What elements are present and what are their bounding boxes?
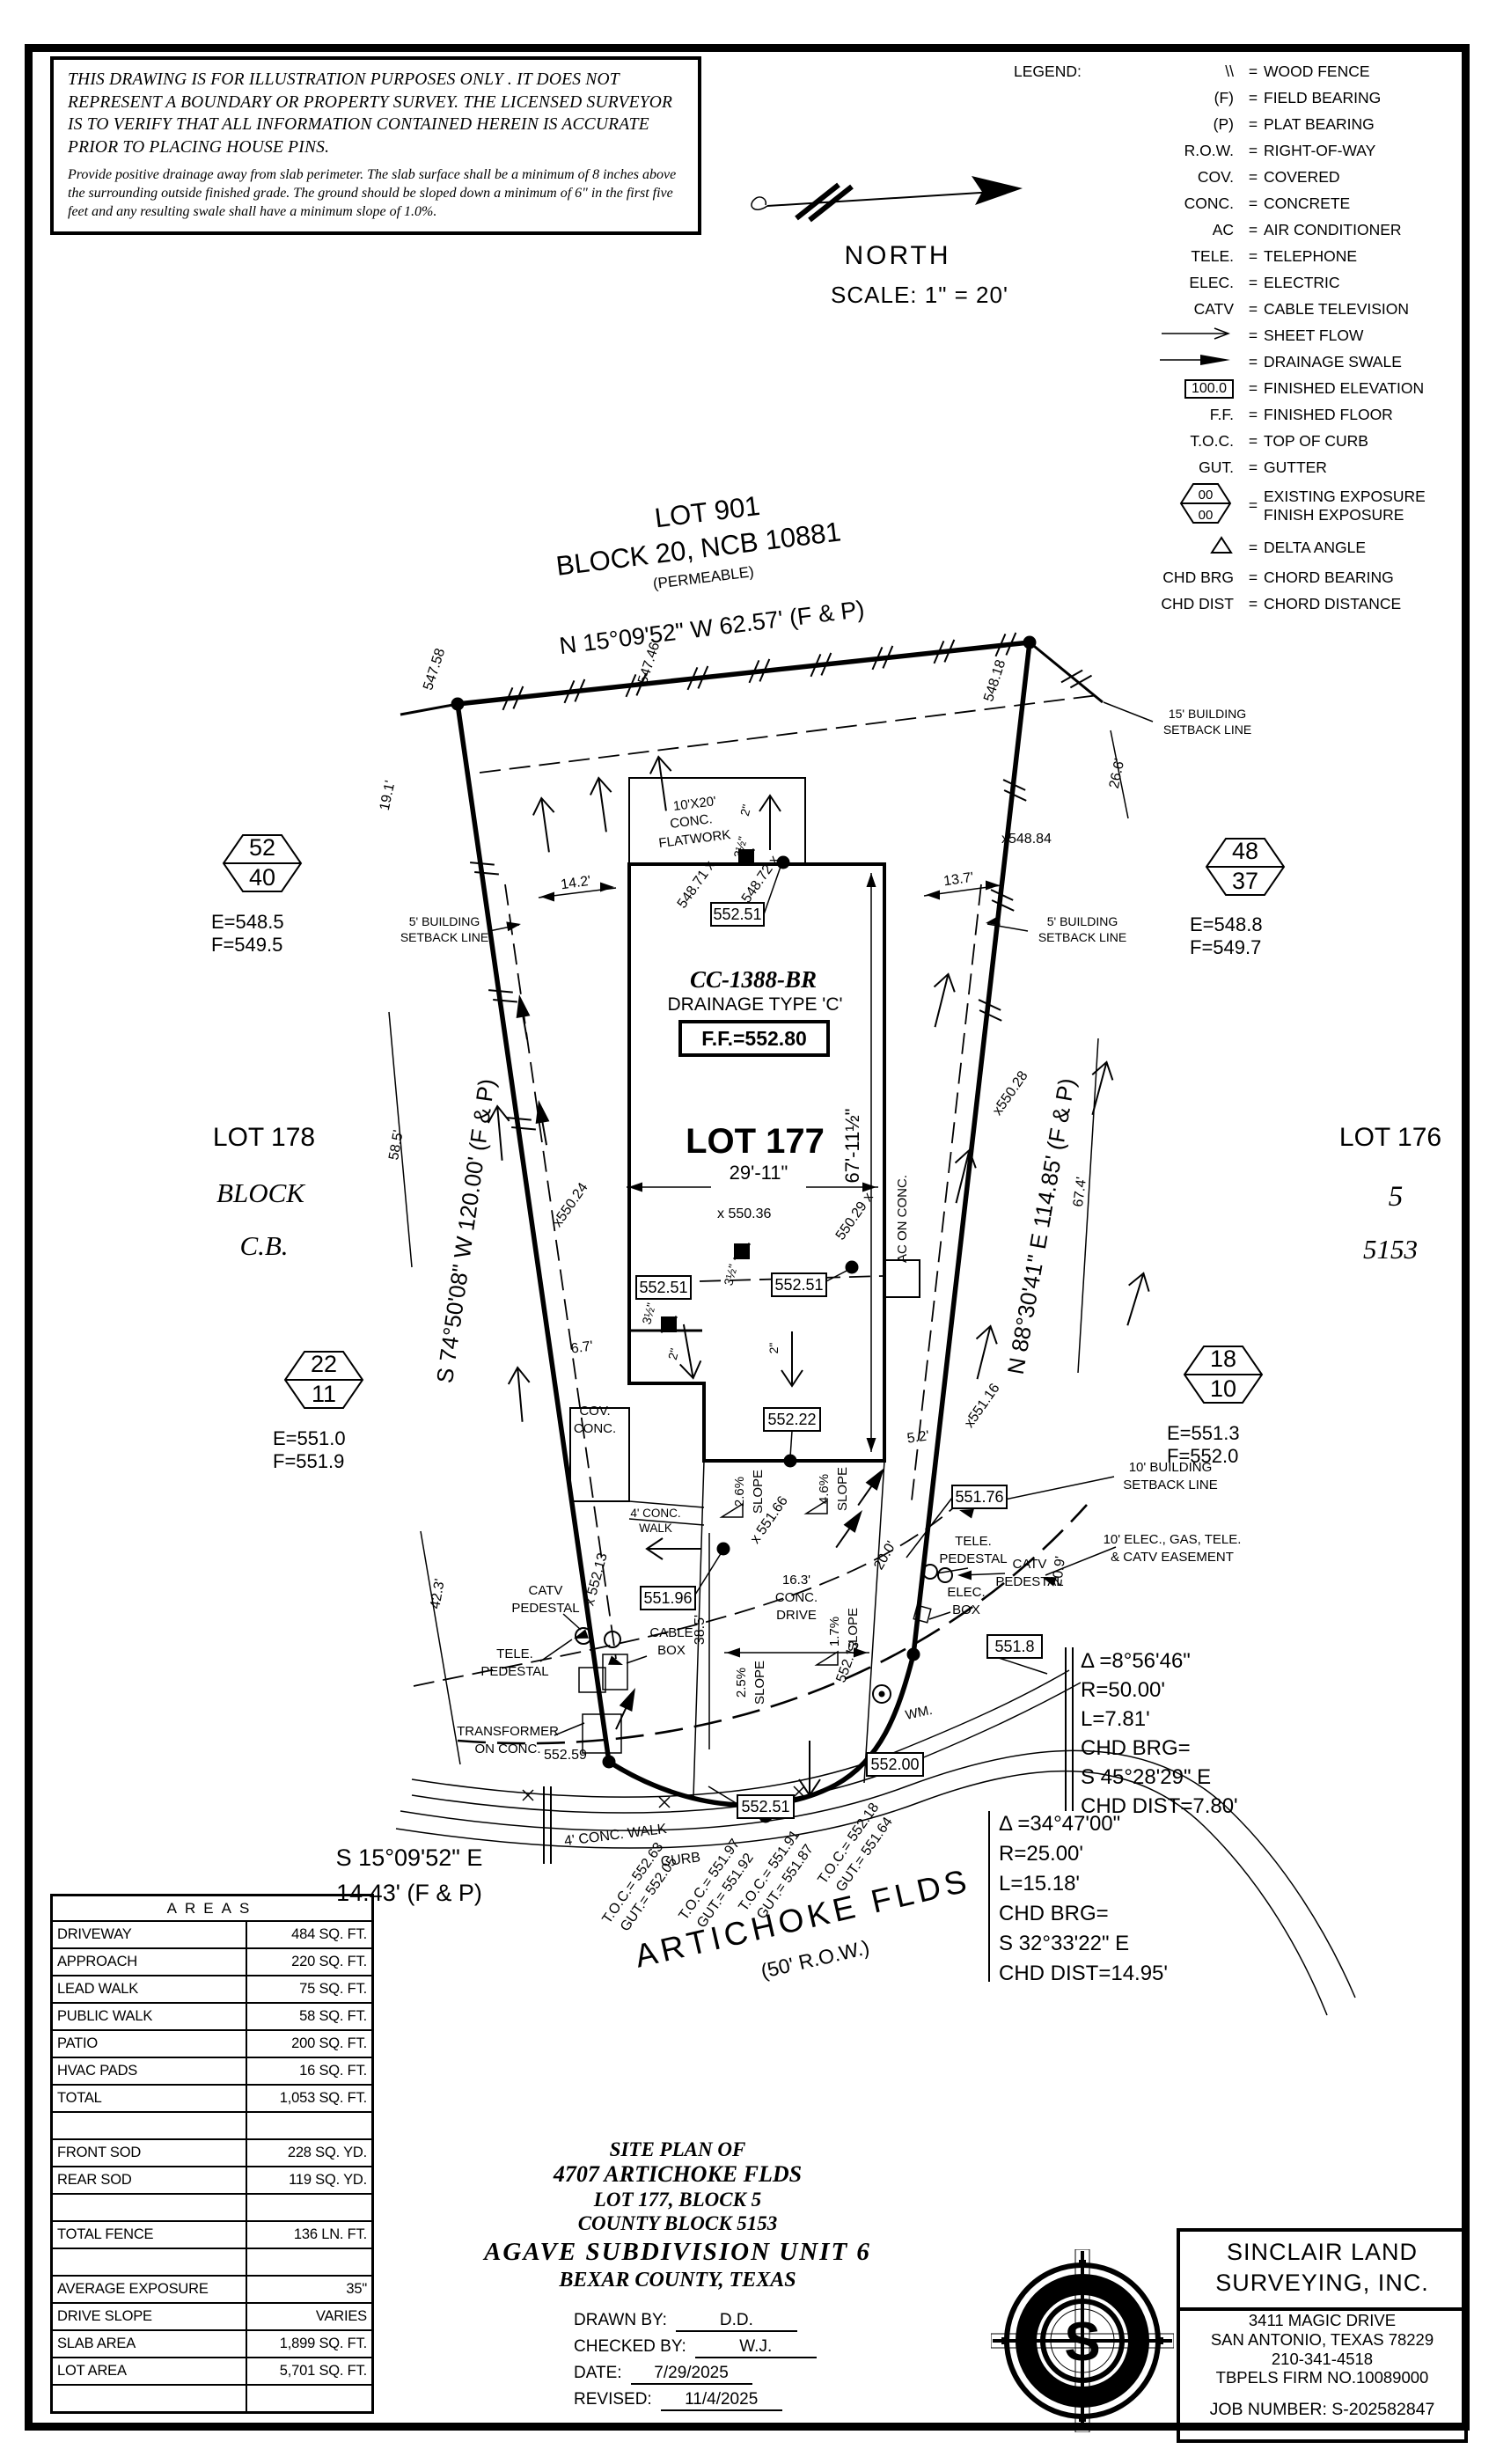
- drawn-by-row: DRAWN BY:D.D.: [574, 2311, 817, 2337]
- svg-text:552.00: 552.00: [870, 1756, 919, 1773]
- svg-text:PEDESTAL: PEDESTAL: [511, 1601, 579, 1616]
- svg-text:LOT 177: LOT 177: [686, 1122, 825, 1161]
- svg-text:5: 5: [1389, 1181, 1404, 1213]
- svg-text:52: 52: [249, 834, 275, 861]
- svg-text:F=549.7: F=549.7: [1190, 936, 1261, 958]
- date-row: DATE:7/29/2025: [574, 2364, 817, 2390]
- svg-text:551.76: 551.76: [955, 1488, 1003, 1506]
- checked-by-row: CHECKED BY:W.J.: [574, 2337, 817, 2364]
- svg-text:Δ =8°56'46": Δ =8°56'46": [1081, 1649, 1191, 1673]
- table-row: AVERAGE EXPOSURE35": [53, 2277, 371, 2304]
- svg-text:2": 2": [766, 1343, 781, 1354]
- svg-text:5.2': 5.2': [906, 1428, 930, 1446]
- svg-text:552.51: 552.51: [774, 1276, 823, 1294]
- revised-value: 11/4/2025: [661, 2390, 782, 2411]
- svg-text:5153: 5153: [1363, 1234, 1418, 1265]
- table-row: HVAC PADS16 SQ. FT.: [53, 2058, 371, 2086]
- firm-name-line: SURVEYING, INC.: [1180, 2268, 1464, 2299]
- svg-text:LOT 176: LOT 176: [1339, 1123, 1441, 1152]
- title-line: AGAVE SUBDIVISION UNIT 6: [370, 2236, 986, 2268]
- svg-text:WALK: WALK: [639, 1522, 672, 1535]
- table-row: TOTAL FENCE136 LN. FT.: [53, 2222, 371, 2249]
- svg-text:11: 11: [312, 1381, 336, 1407]
- svg-text:4' CONC.: 4' CONC.: [630, 1507, 680, 1520]
- svg-text:BLOCK: BLOCK: [216, 1177, 306, 1208]
- svg-text:2": 2": [737, 803, 754, 817]
- site-plan-sheet: { "colors": {"ink": "#000000", "paper": …: [0, 0, 1496, 2464]
- svg-text:CABLE: CABLE: [649, 1625, 693, 1640]
- svg-text:TELE.: TELE.: [496, 1646, 533, 1661]
- svg-text:SLOPE: SLOPE: [846, 1608, 861, 1652]
- signature-block: DRAWN BY:D.D. CHECKED BY:W.J. DATE:7/29/…: [574, 2311, 817, 2416]
- svg-text:10: 10: [1210, 1375, 1236, 1402]
- svg-text:SLOPE: SLOPE: [835, 1467, 850, 1511]
- areas-table-title: AREAS: [53, 1896, 371, 1922]
- svg-text:550.29 x: 550.29 x: [833, 1190, 876, 1243]
- svg-text:E=551.3: E=551.3: [1167, 1422, 1240, 1444]
- svg-text:R=50.00': R=50.00': [1081, 1678, 1165, 1702]
- svg-text:552.51: 552.51: [713, 906, 761, 923]
- svg-text:3½": 3½": [639, 1302, 658, 1326]
- table-row: LOT AREA5,701 SQ. FT.: [53, 2358, 371, 2386]
- svg-text:2.6%: 2.6%: [732, 1477, 747, 1507]
- svg-text:14.2': 14.2': [560, 874, 591, 893]
- svg-text:x550.24: x550.24: [550, 1180, 591, 1229]
- svg-text:TELE.: TELE.: [955, 1534, 992, 1549]
- areas-table: AREAS DRIVEWAY484 SQ. FT. APPROACH220 SQ…: [50, 1894, 374, 2414]
- svg-text:37: 37: [1232, 868, 1258, 894]
- firm-address-line: 3411 MAGIC DRIVE: [1180, 2311, 1464, 2330]
- svg-text:E=548.8: E=548.8: [1190, 913, 1263, 935]
- sinclair-logo: S: [991, 2249, 1174, 2432]
- firm-license: TBPELS FIRM NO.10089000: [1180, 2368, 1464, 2387]
- table-row: REAR SOD119 SQ. YD.: [53, 2167, 371, 2195]
- checked-by-value: W.J.: [695, 2337, 817, 2358]
- svg-text:x 550.36: x 550.36: [717, 1206, 771, 1221]
- svg-text:x 552.13: x 552.13: [582, 1551, 610, 1608]
- table-row: PUBLIC WALK58 SQ. FT.: [53, 2004, 371, 2031]
- svg-text:552.59: 552.59: [544, 1748, 587, 1763]
- svg-text:551.96: 551.96: [643, 1589, 692, 1607]
- firm-info-box: 3411 MAGIC DRIVE SAN ANTONIO, TEXAS 7822…: [1177, 2302, 1468, 2443]
- svg-text:BOX: BOX: [657, 1643, 686, 1658]
- svg-text:ELEC.: ELEC.: [947, 1585, 985, 1600]
- svg-text:547.58: 547.58: [421, 647, 448, 693]
- svg-text:Δ =34°47'00": Δ =34°47'00": [999, 1812, 1120, 1836]
- title-block: SITE PLAN OF 4707 ARTICHOKE FLDS LOT 177…: [370, 2138, 986, 2293]
- svg-text:WM.: WM.: [904, 1703, 934, 1723]
- revised-row: REVISED:11/4/2025: [574, 2390, 817, 2416]
- svg-text:SETBACK LINE: SETBACK LINE: [1123, 1478, 1218, 1492]
- svg-text:3½": 3½": [721, 1263, 740, 1287]
- table-row: TOTAL1,053 SQ. FT.: [53, 2086, 371, 2113]
- slope-labels: 2.6% SLOPE 4.6% SLOPE 2.5% SLOPE 1.7% SL…: [563, 803, 861, 1869]
- table-row: SLAB AREA1,899 SQ. FT.: [53, 2331, 371, 2358]
- svg-text:CONC.: CONC.: [775, 1590, 818, 1605]
- svg-text:40: 40: [249, 864, 275, 891]
- svg-text:22: 22: [311, 1351, 337, 1377]
- firm-address-line: SAN ANTONIO, TEXAS 78229: [1180, 2330, 1464, 2350]
- svg-text:CHD DIST=14.95': CHD DIST=14.95': [999, 1962, 1168, 1985]
- svg-text:20.0': 20.0': [871, 1539, 899, 1573]
- svg-text:6.7': 6.7': [570, 1338, 594, 1356]
- svg-text:548.18: 548.18: [981, 658, 1008, 704]
- svg-text:19.1': 19.1': [378, 780, 399, 812]
- slope-symbols: [722, 1500, 838, 1665]
- svg-text:L=15.18': L=15.18': [999, 1872, 1080, 1896]
- svg-text:CC-1388-BR: CC-1388-BR: [690, 966, 817, 993]
- svg-text:COV.: COV.: [579, 1404, 610, 1419]
- table-row: APPROACH220 SQ. FT.: [53, 1949, 371, 1976]
- table-row: DRIVE SLOPEVARIES: [53, 2304, 371, 2331]
- svg-text:S 32°33'22" E: S 32°33'22" E: [999, 1932, 1129, 1955]
- job-number: JOB NUMBER: S-202582847: [1180, 2400, 1464, 2420]
- svg-text:S 15°09'52" E: S 15°09'52" E: [336, 1844, 483, 1871]
- svg-text:S 45°28'29" E: S 45°28'29" E: [1081, 1765, 1211, 1789]
- svg-text:DRIVE: DRIVE: [776, 1608, 817, 1623]
- svg-text:13.7': 13.7': [942, 870, 974, 890]
- svg-text:552.22: 552.22: [767, 1411, 816, 1428]
- svg-text:C.B.: C.B.: [239, 1230, 288, 1261]
- svg-text:AC ON CONC.: AC ON CONC.: [895, 1175, 910, 1263]
- title-line: BEXAR COUNTY, TEXAS: [370, 2268, 986, 2293]
- svg-text:67.4': 67.4': [1071, 1176, 1089, 1207]
- svg-text:CONC.: CONC.: [574, 1421, 616, 1436]
- setback-labels: 15' BUILDING SETBACK LINE 5' BUILDING SE…: [400, 707, 1251, 1565]
- svg-text:552.51: 552.51: [639, 1279, 687, 1296]
- svg-text:10' ELEC., GAS, TELE.: 10' ELEC., GAS, TELE.: [1104, 1532, 1242, 1547]
- svg-text:48: 48: [1232, 838, 1258, 864]
- svg-text:38.5': 38.5': [693, 1615, 708, 1645]
- svg-text:TRANSFORMER: TRANSFORMER: [457, 1724, 559, 1739]
- svg-text:F=549.5: F=549.5: [211, 934, 282, 956]
- utility-labels: CATV PEDESTAL TELE. PEDESTAL CABLE BOX T…: [457, 1534, 1064, 1756]
- firm-name-box: SINCLAIR LAND SURVEYING, INC.: [1177, 2228, 1468, 2311]
- table-row: [53, 2249, 371, 2277]
- drawn-by-value: D.D.: [676, 2311, 797, 2332]
- svg-text:E=551.0: E=551.0: [273, 1427, 346, 1449]
- svg-text:x548.84: x548.84: [1001, 832, 1052, 847]
- svg-text:551.8: 551.8: [994, 1638, 1034, 1655]
- svg-text:552.51: 552.51: [741, 1798, 789, 1815]
- firm-name-line: SINCLAIR LAND: [1180, 2237, 1464, 2268]
- street-name: ARTICHOKE FLDS (50' R.O.W.): [632, 1862, 974, 1983]
- table-row: [53, 2113, 371, 2140]
- svg-text:10' BUILDING: 10' BUILDING: [1129, 1460, 1213, 1475]
- svg-text:42.3': 42.3': [428, 1578, 448, 1610]
- svg-text:CONC.: CONC.: [669, 811, 713, 832]
- svg-text:FLATWORK: FLATWORK: [658, 827, 732, 851]
- svg-text:SLOPE: SLOPE: [752, 1661, 767, 1705]
- svg-text:F.F.=552.80: F.F.=552.80: [701, 1027, 807, 1050]
- svg-text:F=551.9: F=551.9: [273, 1450, 344, 1472]
- svg-text:SETBACK LINE: SETBACK LINE: [1163, 722, 1251, 737]
- svg-text:PEDESTAL: PEDESTAL: [939, 1551, 1007, 1566]
- table-row: LEAD WALK75 SQ. FT.: [53, 1976, 371, 2004]
- svg-text:5' BUILDING: 5' BUILDING: [409, 914, 480, 928]
- curve-data-2: Δ =34°47'00" R=25.00' L=15.18' CHD BRG= …: [999, 1812, 1168, 1985]
- svg-text:SETBACK LINE: SETBACK LINE: [400, 930, 488, 944]
- svg-text:& CATV EASEMENT: & CATV EASEMENT: [1111, 1550, 1234, 1565]
- svg-text:29'-11": 29'-11": [730, 1162, 788, 1184]
- svg-text:S 74°50'08" W 120.00' (F & P: S 74°50'08" W 120.00' (F & P): [431, 1077, 500, 1385]
- svg-text:L=7.81': L=7.81': [1081, 1707, 1150, 1731]
- svg-text:R=25.00': R=25.00': [999, 1842, 1083, 1866]
- svg-text:PEDESTAL: PEDESTAL: [995, 1574, 1063, 1589]
- svg-text:DRAINAGE TYPE 'C': DRAINAGE TYPE 'C': [667, 994, 842, 1015]
- svg-text:LOT 178: LOT 178: [213, 1123, 315, 1152]
- svg-text:1.7%: 1.7%: [827, 1617, 842, 1646]
- table-row: PATIO200 SQ. FT.: [53, 2031, 371, 2058]
- svg-text:CATV: CATV: [1013, 1557, 1047, 1572]
- firm-phone: 210-341-4518: [1180, 2350, 1464, 2369]
- svg-text:N 15°09'52" W 62.57' (F & P): N 15°09'52" W 62.57' (F & P): [558, 596, 866, 659]
- svg-text:CHD BRG=: CHD BRG=: [999, 1902, 1109, 1925]
- svg-text:58.5': 58.5': [386, 1129, 407, 1162]
- logo-letter: S: [1064, 2312, 1100, 2372]
- table-row: [53, 2195, 371, 2222]
- svg-text:N 88°30'41" E 114.85' (F & P: N 88°30'41" E 114.85' (F & P): [1002, 1076, 1081, 1376]
- svg-text:16.3': 16.3': [782, 1573, 810, 1588]
- svg-text:CATV: CATV: [529, 1583, 563, 1598]
- svg-text:SETBACK LINE: SETBACK LINE: [1038, 930, 1126, 944]
- svg-text:SLOPE: SLOPE: [751, 1470, 766, 1514]
- lot-labels: LOT 901 BLOCK 20, NCB 10881 (PERMEABLE) …: [213, 490, 1441, 1906]
- date-value: 7/29/2025: [631, 2364, 752, 2385]
- title-line: LOT 177, BLOCK 5: [370, 2188, 986, 2212]
- svg-text:BOX: BOX: [952, 1602, 980, 1617]
- svg-text:5' BUILDING: 5' BUILDING: [1047, 914, 1118, 928]
- svg-text:15' BUILDING: 15' BUILDING: [1169, 707, 1246, 721]
- table-row: [53, 2386, 371, 2411]
- svg-text:4.6%: 4.6%: [817, 1474, 832, 1504]
- table-row: FRONT SOD228 SQ. YD.: [53, 2140, 371, 2167]
- title-line: SITE PLAN OF: [370, 2138, 986, 2161]
- svg-text:ON CONC.: ON CONC.: [475, 1742, 541, 1756]
- svg-text:x551.16: x551.16: [962, 1381, 1003, 1430]
- title-line: COUNTY BLOCK 5153: [370, 2211, 986, 2236]
- svg-text:CHD BRG=: CHD BRG=: [1081, 1736, 1191, 1760]
- svg-text:x550.28: x550.28: [990, 1068, 1031, 1118]
- svg-text:18: 18: [1210, 1346, 1236, 1372]
- svg-text:26.6': 26.6': [1107, 758, 1128, 790]
- svg-text:E=548.5: E=548.5: [211, 911, 284, 933]
- title-line: 4707 ARTICHOKE FLDS: [370, 2161, 986, 2188]
- svg-text:67'-11½": 67'-11½": [841, 1109, 863, 1184]
- north-arrow-icon: [752, 176, 1023, 220]
- svg-text:2": 2": [665, 1346, 682, 1360]
- table-row: DRIVEWAY484 SQ. FT.: [53, 1922, 371, 1949]
- svg-text:2.5%: 2.5%: [734, 1668, 749, 1698]
- svg-text:PEDESTAL: PEDESTAL: [480, 1664, 548, 1679]
